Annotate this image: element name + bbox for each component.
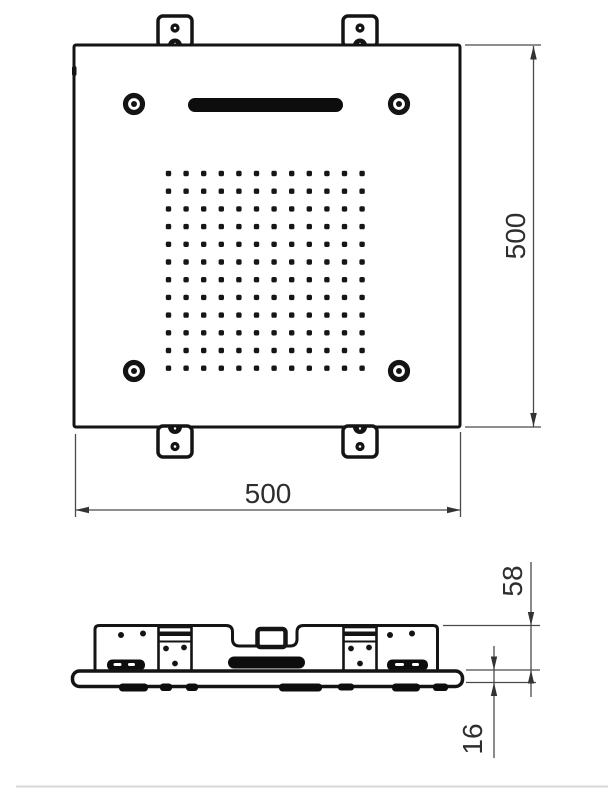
nozzle-dot: [324, 312, 329, 317]
nozzle-dot: [271, 259, 276, 264]
screw-hole-top-left: [126, 96, 143, 113]
nozzle-dot: [324, 295, 329, 300]
nozzle-dot: [289, 242, 294, 247]
nozzle-dot: [236, 348, 241, 353]
nozzle-dot: [289, 224, 294, 229]
screw-hole-bottom-right: [391, 363, 408, 380]
nozzle-dot: [359, 277, 364, 282]
arrowhead-icon: [528, 670, 534, 684]
nozzle-dot: [183, 206, 188, 211]
nozzle-dot: [359, 295, 364, 300]
housing-hole-icon: [118, 632, 124, 638]
nozzle-dot: [271, 366, 276, 371]
nozzle-dot: [271, 189, 276, 194]
nozzle-dot: [324, 366, 329, 371]
nozzle-dot: [359, 206, 364, 211]
nozzle-dot: [183, 295, 188, 300]
nozzle-dot: [324, 330, 329, 335]
nozzle-dot: [289, 171, 294, 176]
nozzle-dot: [236, 171, 241, 176]
waterfall-slot: [188, 98, 343, 112]
nozzle-bumps: [119, 684, 448, 692]
nozzle-dot: [236, 259, 241, 264]
side-bracket-left: [159, 627, 192, 672]
nozzle-dot: [254, 171, 259, 176]
nozzle-dot: [219, 224, 224, 229]
arrowhead-icon: [530, 413, 537, 427]
nozzle-dot: [307, 348, 312, 353]
nozzle-dot: [271, 295, 276, 300]
gasket-right: [387, 660, 428, 671]
nozzle-dot: [166, 224, 171, 229]
nozzle-dot: [324, 242, 329, 247]
nozzle-dot: [342, 242, 347, 247]
nozzle-dot: [166, 259, 171, 264]
nozzle-dot: [342, 330, 347, 335]
nozzle-dot: [342, 295, 347, 300]
nozzle-dot: [183, 171, 188, 176]
nozzle-dot: [271, 277, 276, 282]
arrowhead-icon: [491, 657, 497, 671]
nozzle-dot: [236, 189, 241, 194]
side-view-dimensions: 58 16: [443, 562, 540, 758]
nozzle-dot: [324, 348, 329, 353]
nozzle-dot: [307, 330, 312, 335]
nozzle-dot: [183, 312, 188, 317]
nozzle-dot: [201, 330, 206, 335]
nozzle-dot: [254, 277, 259, 282]
dimension-label-height: 500: [500, 213, 531, 260]
nozzle-dot: [307, 189, 312, 194]
screw-hole-top-right: [391, 96, 408, 113]
nozzle-dot: [307, 259, 312, 264]
nozzle-dot: [342, 171, 347, 176]
nozzle-dot: [324, 277, 329, 282]
nozzle-dot: [236, 366, 241, 371]
nozzle-dot: [219, 312, 224, 317]
nozzle-dot: [201, 171, 206, 176]
nozzle-dot: [219, 295, 224, 300]
nozzle-dot: [271, 171, 276, 176]
nozzle-dot: [201, 312, 206, 317]
housing-hole-icon: [140, 631, 146, 637]
nozzle-dot: [183, 242, 188, 247]
nozzle-dot: [254, 206, 259, 211]
nozzle-dot: [359, 171, 364, 176]
technical-drawing: 500 500: [0, 0, 608, 800]
nozzle-dot: [359, 224, 364, 229]
nozzle-dot: [359, 330, 364, 335]
nozzle-dot: [342, 259, 347, 264]
nozzle-dot: [254, 348, 259, 353]
housing-hole-icon: [387, 632, 393, 638]
arrowhead-icon: [530, 46, 537, 60]
nozzle-dot: [183, 277, 188, 282]
nozzle-dot: [324, 206, 329, 211]
nozzle-dot: [236, 330, 241, 335]
dimension-label-thickness: 16: [457, 723, 488, 754]
nozzle-dot: [201, 277, 206, 282]
nozzle-dot: [166, 206, 171, 211]
nozzle-dot: [236, 277, 241, 282]
nozzle-dot: [359, 242, 364, 247]
nozzle-dot: [324, 189, 329, 194]
nozzle-dot: [254, 330, 259, 335]
nozzle-dot: [219, 171, 224, 176]
nozzle-dot: [219, 189, 224, 194]
nozzle-dot: [307, 277, 312, 282]
nozzle-dot: [236, 242, 241, 247]
mounting-tab-top-left: [158, 16, 192, 47]
housing-hole-icon: [409, 631, 415, 637]
water-inlet-stub: [258, 629, 286, 647]
nozzle-dot: [236, 206, 241, 211]
nozzle-dot: [166, 242, 171, 247]
arrowhead-icon: [528, 612, 534, 626]
nozzle-dot: [359, 259, 364, 264]
nozzle-dot: [342, 366, 347, 371]
nozzle-dot: [219, 330, 224, 335]
nozzle-dot: [271, 348, 276, 353]
nozzle-dot: [166, 171, 171, 176]
nozzle-dot: [307, 224, 312, 229]
nozzle-dot: [254, 259, 259, 264]
nozzle-dot: [342, 189, 347, 194]
dimension-label-width: 500: [245, 478, 292, 509]
nozzle-dot: [201, 259, 206, 264]
nozzle-dot: [219, 259, 224, 264]
nozzle-dot: [254, 366, 259, 371]
side-view: [73, 626, 463, 692]
nozzle-dot: [254, 242, 259, 247]
nozzle-dot: [201, 295, 206, 300]
nozzle-dot: [201, 366, 206, 371]
nozzle-dot: [166, 277, 171, 282]
nozzle-dot: [307, 366, 312, 371]
nozzle-dot: [271, 224, 276, 229]
nozzle-dot: [166, 312, 171, 317]
nozzle-dot: [307, 171, 312, 176]
nozzle-dot: [359, 312, 364, 317]
mounting-tab-top-right: [343, 16, 377, 47]
nozzle-dot: [324, 224, 329, 229]
nozzle-dot: [166, 189, 171, 194]
nozzle-dot: [166, 366, 171, 371]
top-view: [72, 16, 460, 457]
nozzle-dot: [271, 330, 276, 335]
nozzle-dot: [289, 259, 294, 264]
screw-hole-bottom-left: [126, 363, 143, 380]
nozzle-dot: [359, 366, 364, 371]
waterfall-bar-side: [228, 657, 305, 669]
nozzle-dot: [219, 206, 224, 211]
nozzle-dot: [236, 224, 241, 229]
nozzle-dot: [183, 189, 188, 194]
nozzle-dot: [342, 348, 347, 353]
dimension-label-depth: 58: [497, 565, 528, 596]
nozzle-dot: [236, 312, 241, 317]
nozzle-dot: [254, 312, 259, 317]
nozzle-dot: [254, 224, 259, 229]
arrowhead-icon: [76, 507, 90, 514]
mounting-tab-bottom-left: [158, 426, 192, 457]
nozzle-dot: [183, 330, 188, 335]
nozzle-dot: [289, 348, 294, 353]
nozzle-dot: [166, 295, 171, 300]
nozzle-dot: [219, 277, 224, 282]
nozzle-dot: [307, 312, 312, 317]
nozzle-dot: [183, 366, 188, 371]
nozzle-dot: [236, 295, 241, 300]
nozzle-dot: [271, 206, 276, 211]
nozzle-dot: [219, 366, 224, 371]
nozzle-dot: [342, 312, 347, 317]
drawing-canvas: 500 500: [0, 0, 608, 800]
nozzle-dot: [307, 206, 312, 211]
nozzle-dot: [342, 224, 347, 229]
nozzle-dot: [254, 189, 259, 194]
nozzle-dot: [201, 224, 206, 229]
mounting-tab-bottom-right: [343, 426, 377, 457]
nozzle-dot: [359, 348, 364, 353]
nozzle-dot: [166, 330, 171, 335]
nozzle-dot: [324, 259, 329, 264]
nozzle-dot: [201, 189, 206, 194]
nozzle-dot: [271, 312, 276, 317]
left-edge-mark: [72, 66, 77, 76]
nozzle-dot: [201, 206, 206, 211]
nozzle-dot: [183, 224, 188, 229]
nozzle-dot: [289, 295, 294, 300]
nozzle-dot: [254, 295, 259, 300]
nozzle-dot: [342, 277, 347, 282]
nozzle-dot: [359, 189, 364, 194]
nozzle-dot: [342, 206, 347, 211]
nozzle-dot: [201, 242, 206, 247]
nozzle-dot: [219, 242, 224, 247]
nozzle-dot: [271, 242, 276, 247]
nozzle-dot: [219, 348, 224, 353]
nozzle-dot: [289, 189, 294, 194]
side-bracket-right: [344, 627, 377, 672]
nozzle-dot: [324, 171, 329, 176]
nozzle-dot: [289, 206, 294, 211]
nozzle-dot: [289, 312, 294, 317]
nozzle-dot: [289, 366, 294, 371]
nozzle-dot: [289, 330, 294, 335]
nozzle-dot: [307, 295, 312, 300]
arrowhead-icon: [447, 507, 461, 514]
nozzle-dot: [183, 259, 188, 264]
nozzle-dot: [307, 242, 312, 247]
gasket-left: [107, 660, 145, 671]
nozzle-dot: [166, 348, 171, 353]
nozzle-dot: [289, 277, 294, 282]
nozzle-dot: [201, 348, 206, 353]
nozzle-dot: [183, 348, 188, 353]
arrowhead-icon: [491, 683, 497, 697]
